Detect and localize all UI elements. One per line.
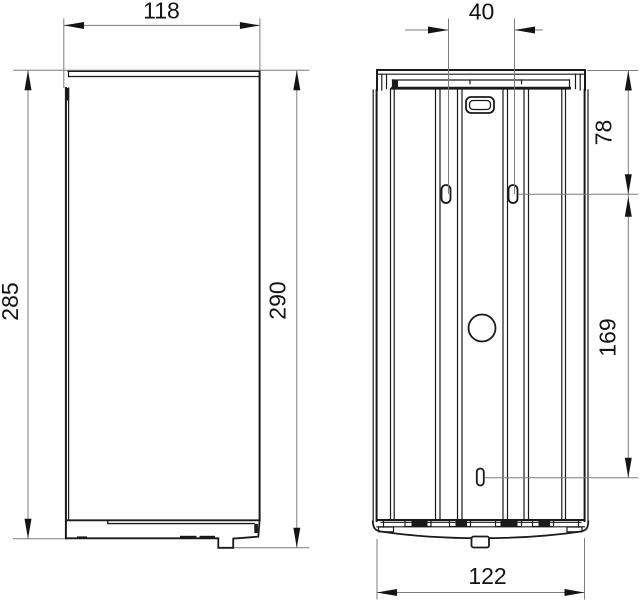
rear-view: [373, 70, 589, 548]
rear-bottom-tab: [472, 537, 490, 548]
dimension-285-body-height: 285: [0, 70, 309, 539]
rear-clip-mark3: [501, 521, 518, 526]
dim78-arrow-top: [625, 71, 632, 91]
handle-slot-inner: [470, 101, 491, 110]
dim78-arrow-bottom: [625, 174, 632, 194]
rear-clip-mark1: [412, 521, 428, 526]
dim290-label: 290: [265, 281, 291, 319]
keyhole-left: [442, 185, 451, 203]
dim122-arrow-right: [565, 589, 585, 596]
dim169-arrow-bottom: [625, 458, 632, 478]
side-view: [65, 71, 259, 548]
rear-rail-clip-mark: [393, 80, 399, 88]
dimension-118-depth: 118: [64, 0, 260, 88]
dim118-arrow-right: [240, 22, 260, 29]
dim290-arrow-top: [293, 70, 300, 90]
dim40-label: 40: [469, 0, 495, 25]
dimension-drawing: 118 285 290: [0, 0, 640, 605]
technical-drawing-canvas: 118 285 290: [0, 0, 640, 605]
dim285-label: 285: [0, 282, 23, 320]
side-wall-bracket-mark: [65, 88, 69, 101]
rear-panel-seam-centerright: [503, 89, 508, 521]
rear-panel-seam-left: [436, 89, 441, 521]
dim285-arrow-top: [25, 70, 32, 90]
dim169-arrow-top: [625, 197, 632, 217]
side-base-outline: [66, 520, 260, 548]
rear-clip-mark2: [456, 521, 468, 526]
dim40-arrow-right: [515, 27, 536, 34]
side-base-foot-mid1: [180, 536, 197, 538]
side-base-foot-mid2: [200, 536, 216, 538]
rear-clip-mark4: [539, 521, 551, 526]
dim122-label: 122: [468, 563, 506, 589]
side-base-foot-left: [77, 536, 87, 538]
dim118-label: 118: [143, 0, 180, 24]
dimension-290-overall-height: 290: [234, 70, 310, 548]
center-hole: [469, 315, 496, 342]
rear-right-wall-inner-pair: [562, 89, 566, 521]
dim169-label: 169: [595, 318, 621, 356]
dim290-arrow-bottom: [293, 528, 300, 548]
rear-left-wall-inner-pair: [391, 89, 395, 521]
dim40-arrow-left: [428, 27, 449, 34]
rear-panel-seam-right: [524, 89, 529, 521]
dim118-arrow-left: [64, 22, 84, 29]
rear-panel-seam-centerleft: [458, 89, 463, 521]
side-base-latch-mark: [254, 524, 258, 533]
dim285-arrow-bottom: [25, 519, 32, 539]
keyhole-right: [509, 185, 518, 203]
dim122-arrow-left: [377, 589, 397, 596]
lower-fixing-hole: [477, 469, 484, 486]
dim78-label: 78: [591, 120, 617, 146]
